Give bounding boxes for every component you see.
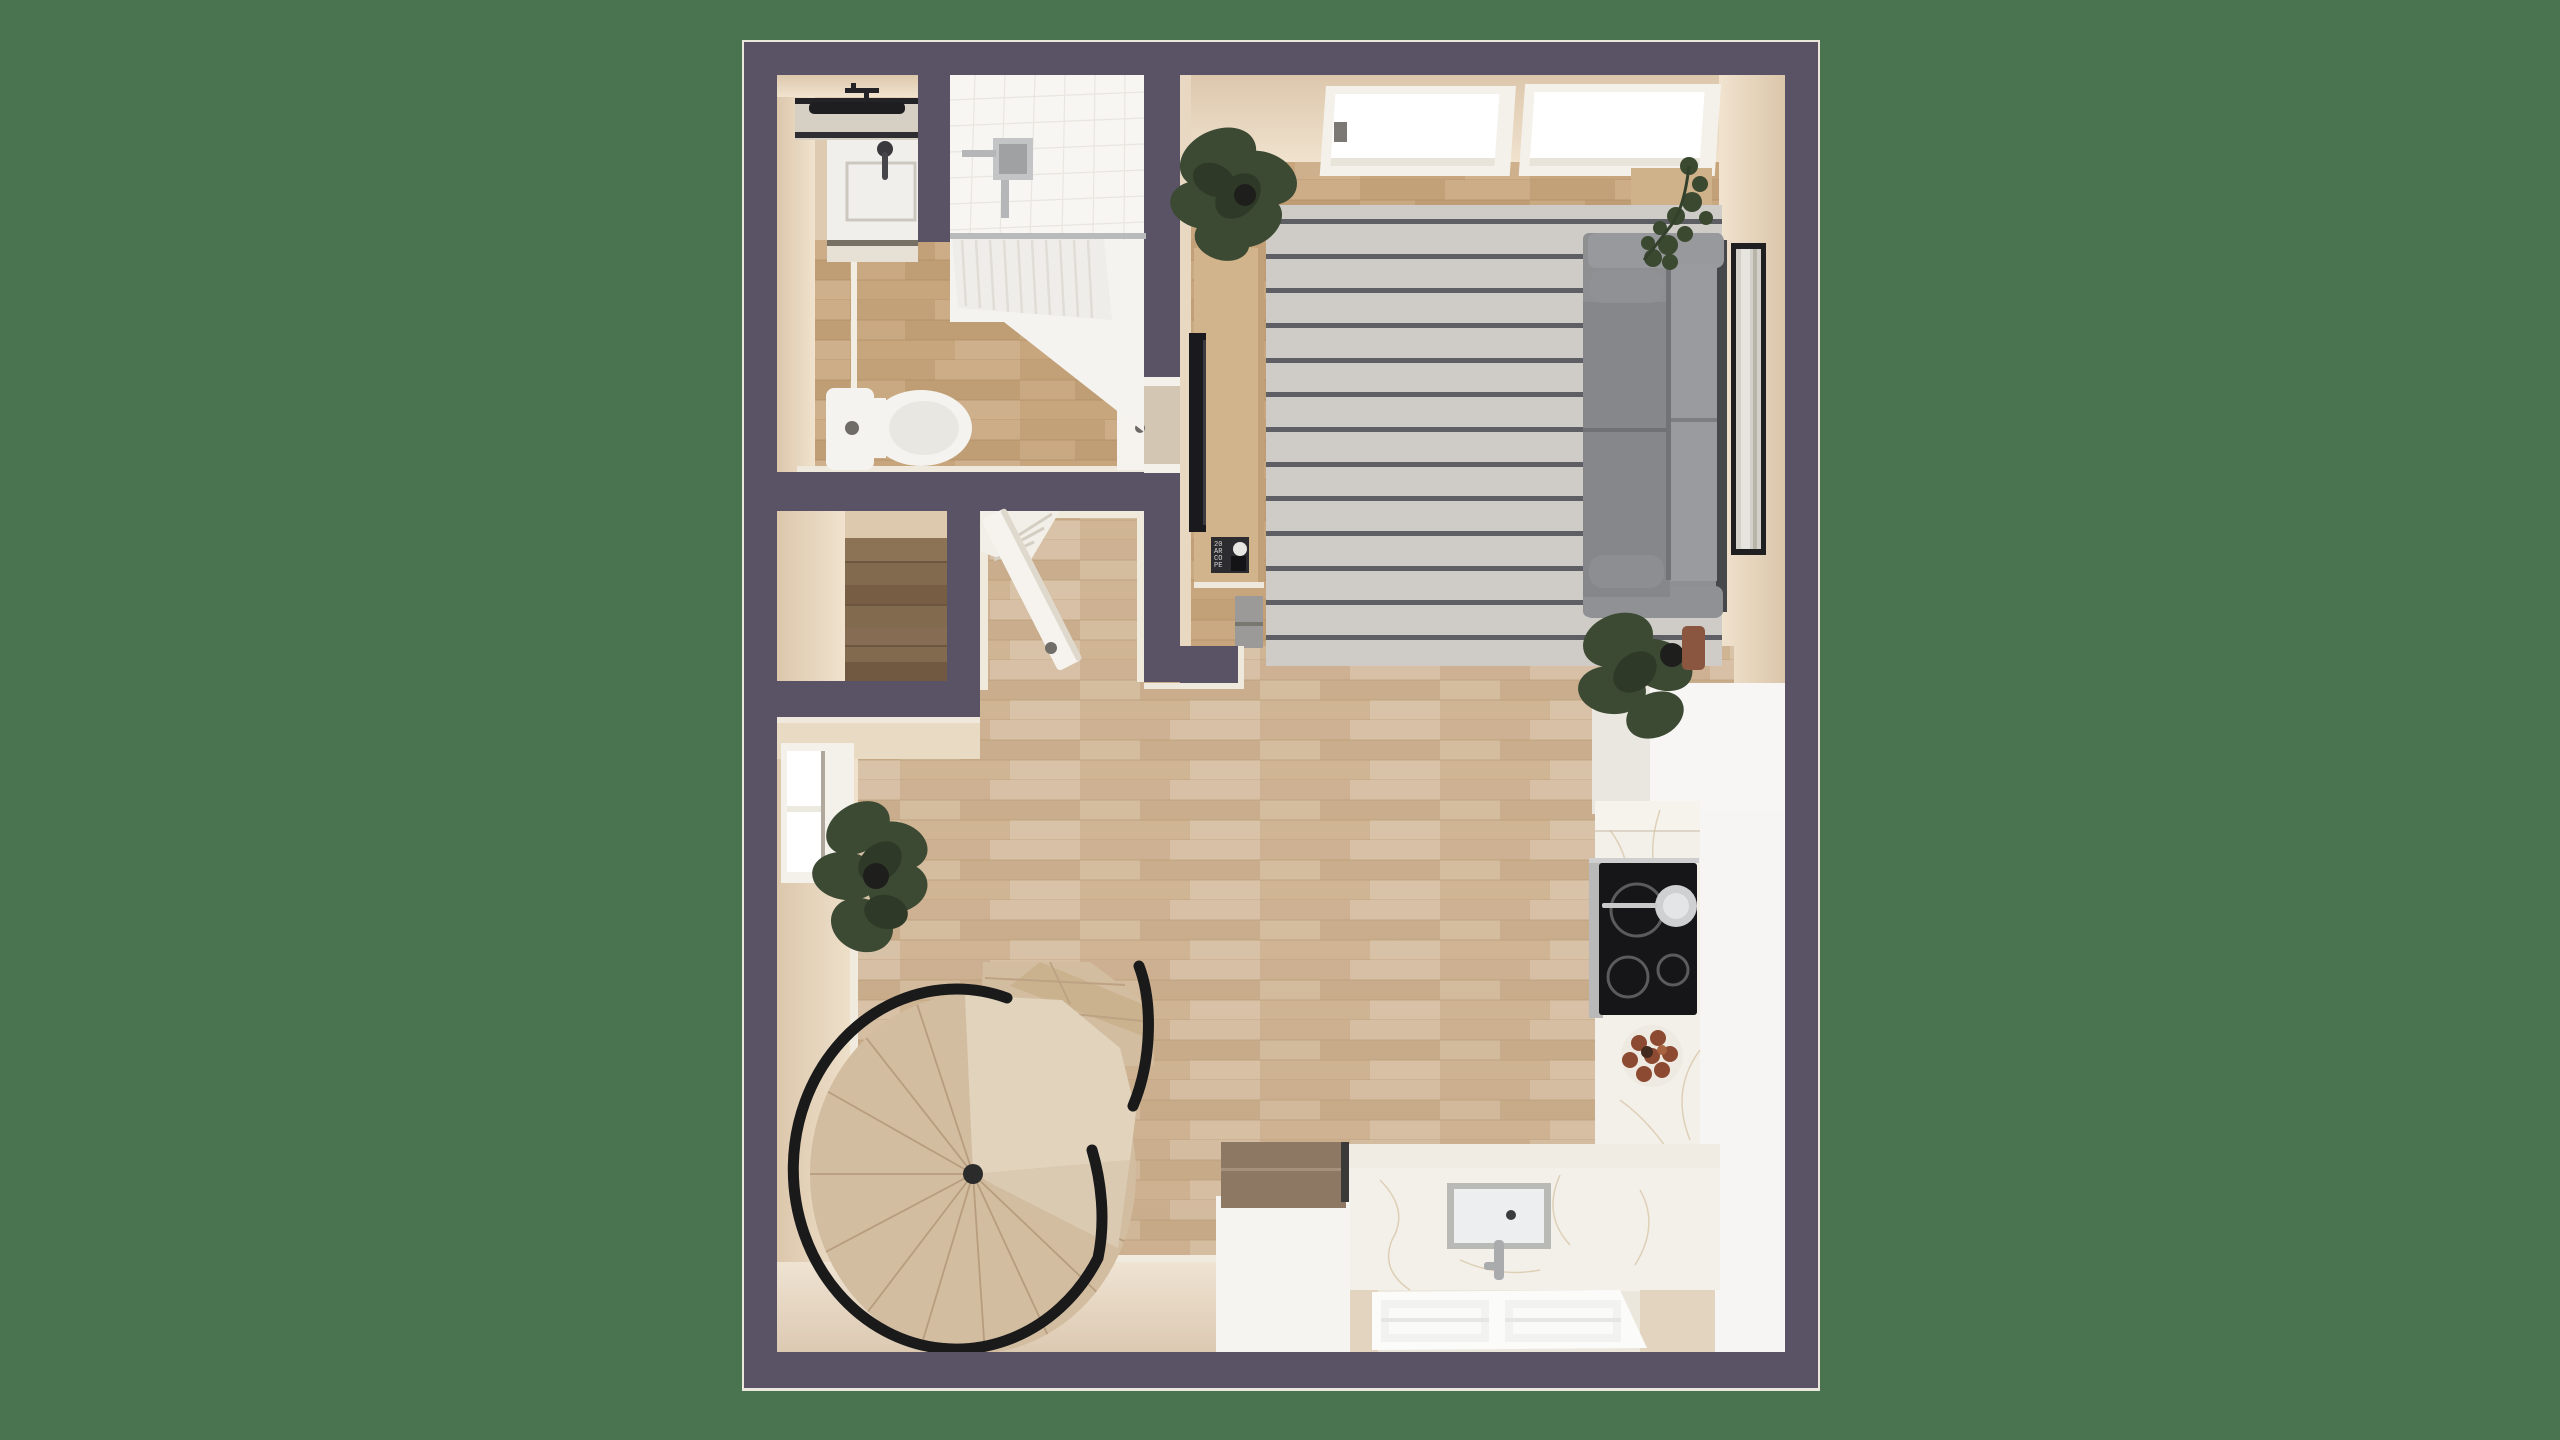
svg-text:PE: PE — [1214, 562, 1222, 570]
